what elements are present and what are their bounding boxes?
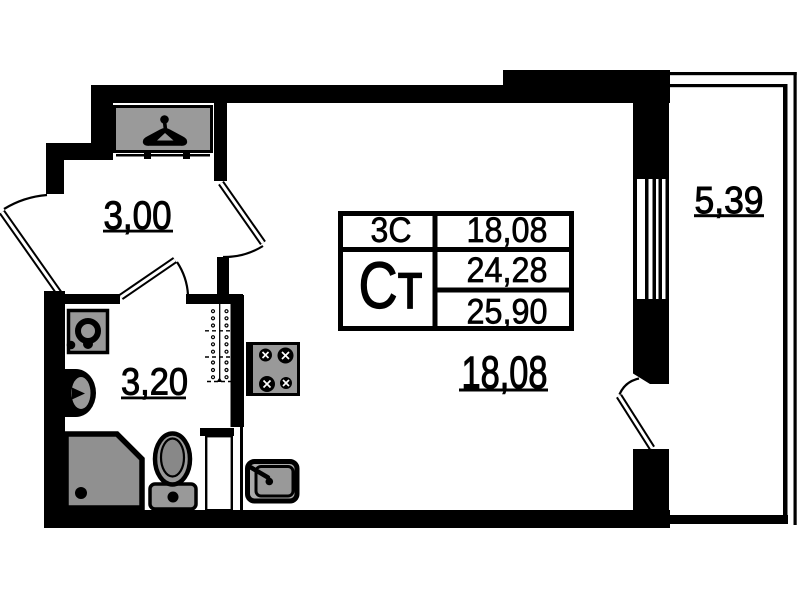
- svg-text:24,28: 24,28: [467, 251, 548, 290]
- svg-text:18,08: 18,08: [467, 211, 548, 250]
- svg-text:Ст: Ст: [359, 248, 423, 322]
- svg-text:25,90: 25,90: [467, 293, 548, 332]
- svg-text:3С: 3С: [371, 211, 412, 250]
